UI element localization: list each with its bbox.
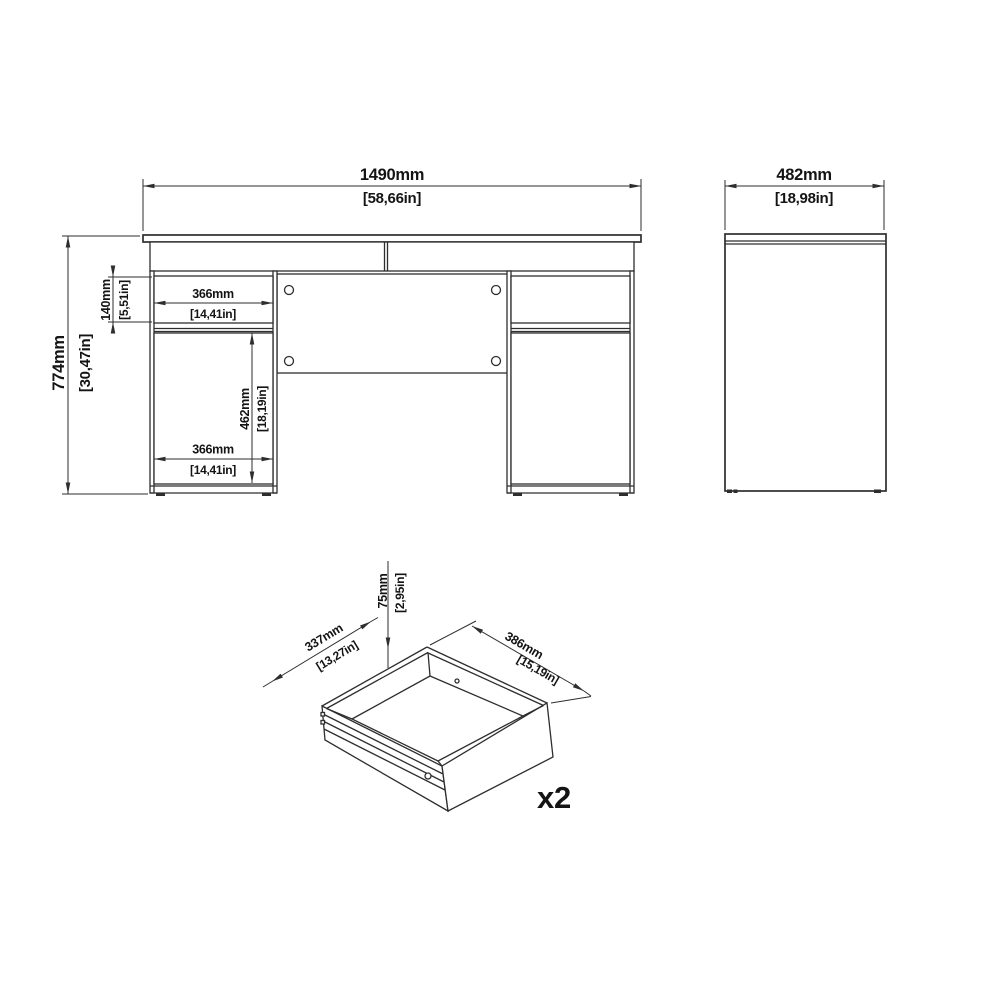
desk-apron	[150, 242, 634, 271]
front-height-in-label: [30,47in]	[77, 334, 94, 392]
dim-overall-width: 1490mm [58,66in]	[143, 166, 641, 231]
foot	[727, 490, 732, 494]
door-height-mm-label: 462mm	[238, 388, 252, 430]
drawer-height-mm-label: 75mm	[376, 573, 390, 608]
screw-hole	[492, 357, 501, 366]
foot	[156, 493, 165, 497]
foot	[619, 493, 628, 497]
right-drawer-front	[511, 276, 630, 323]
foot	[262, 493, 271, 497]
screw-hole	[285, 286, 294, 295]
top-drawer-height-mm-label: 140mm	[99, 279, 113, 321]
back-panel	[277, 274, 508, 373]
top-drawer-height-in-label: [5,51in]	[117, 280, 131, 320]
front-width-mm-label: 1490mm	[360, 166, 424, 184]
dim-top-drawer-height: 140mm [5,51in]	[99, 268, 152, 331]
drawing-svg: 1490mm [58,66in] 774mm [30,47in] 140mm […	[0, 0, 1000, 1000]
drawer-height-in-label: [2,95in]	[393, 573, 407, 613]
front-height-mm-label: 774mm	[50, 335, 68, 390]
door-height-in-label: [18,19in]	[255, 386, 269, 432]
dim-drawer-depth: 337mm [13,27in]	[263, 618, 378, 688]
drawer-left-side	[322, 706, 448, 811]
foot	[874, 490, 881, 494]
drawer-quantity-label: x2	[537, 780, 571, 815]
dim-overall-height: 774mm [30,47in]	[50, 236, 148, 494]
dim-overall-depth: 482mm [18,98in]	[725, 166, 884, 230]
front-width-in-label: [58,66in]	[363, 190, 421, 207]
right-pedestal	[507, 271, 634, 496]
dim-drawer-height: 75mm [2,95in]	[376, 561, 407, 668]
front-view: 1490mm [58,66in] 774mm [30,47in] 140mm […	[50, 166, 641, 496]
top-drawer-width-mm-label: 366mm	[192, 287, 234, 301]
top-drawer-width-in-label: [14,41in]	[190, 307, 236, 321]
drawer-hole	[455, 679, 459, 683]
drawer-view: 75mm [2,95in] 337mm [13,27in] 386mm [15,…	[263, 561, 591, 815]
side-view: 482mm [18,98in]	[725, 166, 886, 493]
screw-hole	[492, 286, 501, 295]
side-depth-mm-label: 482mm	[776, 166, 831, 184]
right-door	[511, 333, 630, 484]
foot	[513, 493, 522, 497]
door-width-in-label: [14,41in]	[190, 463, 236, 477]
side-depth-in-label: [18,98in]	[775, 190, 833, 207]
rail-screw	[425, 773, 431, 779]
screw-hole	[285, 357, 294, 366]
desk-top	[143, 235, 641, 242]
foot	[734, 490, 738, 494]
side-panel	[725, 234, 886, 491]
furniture-dimension-drawing: 1490mm [58,66in] 774mm [30,47in] 140mm […	[0, 0, 1000, 1000]
door-width-mm-label: 366mm	[192, 443, 234, 457]
